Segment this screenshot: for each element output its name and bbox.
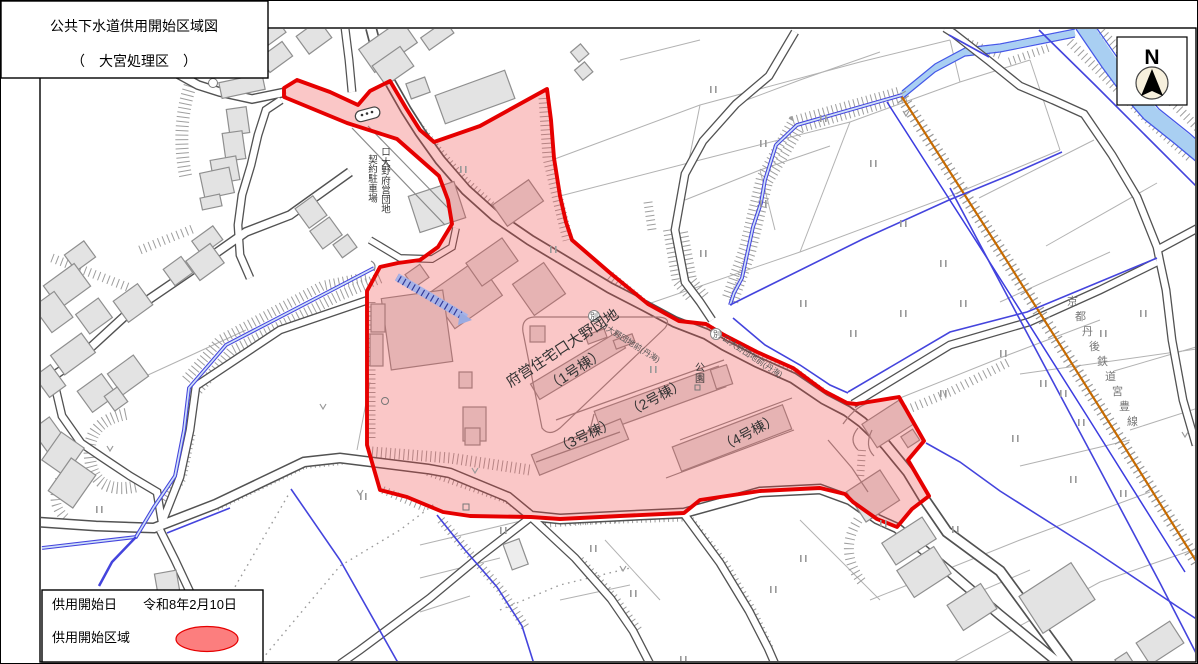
svg-text:N: N xyxy=(1144,46,1159,69)
svg-text:地: 地 xyxy=(381,204,391,216)
svg-text:線: 線 xyxy=(1127,414,1138,428)
svg-text:園: 園 xyxy=(695,373,705,385)
svg-text:供用開始区域: 供用開始区域 xyxy=(52,630,130,645)
svg-text:口: 口 xyxy=(381,147,390,157)
svg-text:公: 公 xyxy=(695,363,705,374)
svg-text:宮: 宮 xyxy=(1112,384,1123,398)
svg-text:鉄: 鉄 xyxy=(1097,354,1108,368)
svg-text:後: 後 xyxy=(1089,339,1100,353)
svg-text:（ 大宮処理区 ）: （ 大宮処理区 ） xyxy=(71,53,197,69)
svg-text:京: 京 xyxy=(1067,294,1078,308)
svg-text:道: 道 xyxy=(1105,369,1116,383)
svg-text:丹: 丹 xyxy=(1082,326,1093,338)
svg-text:別: 別 xyxy=(713,330,721,339)
svg-text:供用開始日 令和8年2月10日: 供用開始日 令和8年2月10日 xyxy=(52,597,237,612)
svg-text:場: 場 xyxy=(368,192,378,204)
svg-text:都: 都 xyxy=(1075,310,1086,323)
svg-text:公共下水道供用開始区域図: 公共下水道供用開始区域図 xyxy=(50,18,218,34)
svg-text:豊: 豊 xyxy=(1119,400,1130,413)
